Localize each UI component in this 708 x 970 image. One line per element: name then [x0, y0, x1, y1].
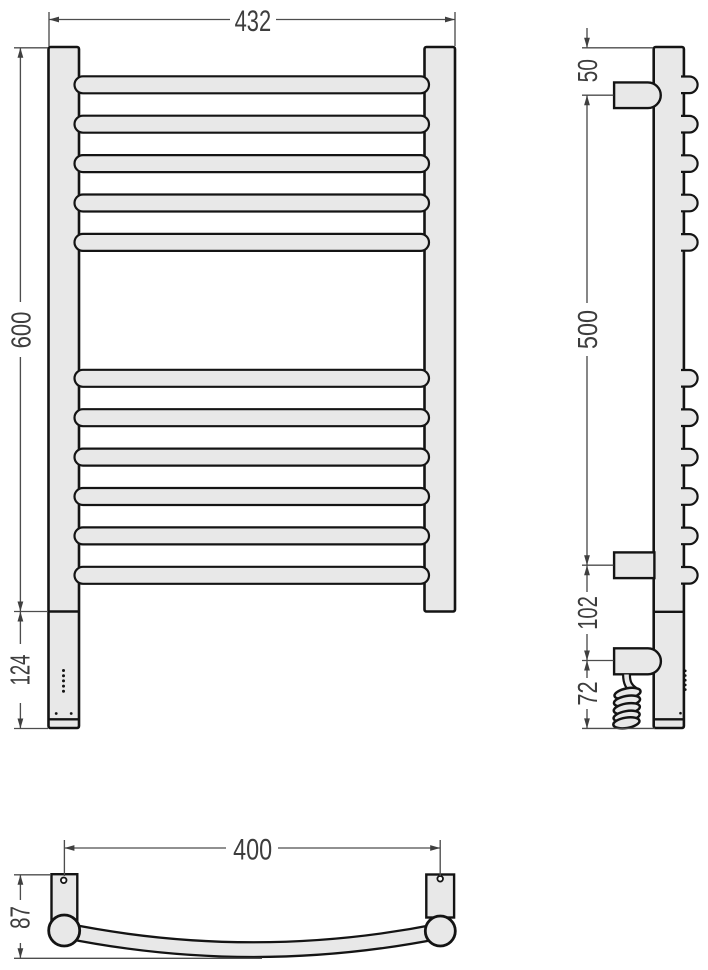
svg-text:87: 87 — [6, 906, 37, 929]
svg-text:50: 50 — [573, 59, 604, 82]
svg-text:102: 102 — [573, 596, 604, 630]
svg-text:400: 400 — [233, 833, 272, 866]
svg-text:72: 72 — [572, 681, 603, 705]
svg-text:432: 432 — [235, 4, 272, 38]
svg-text:600: 600 — [6, 312, 37, 349]
svg-text:500: 500 — [573, 310, 603, 349]
svg-text:124: 124 — [6, 655, 37, 686]
